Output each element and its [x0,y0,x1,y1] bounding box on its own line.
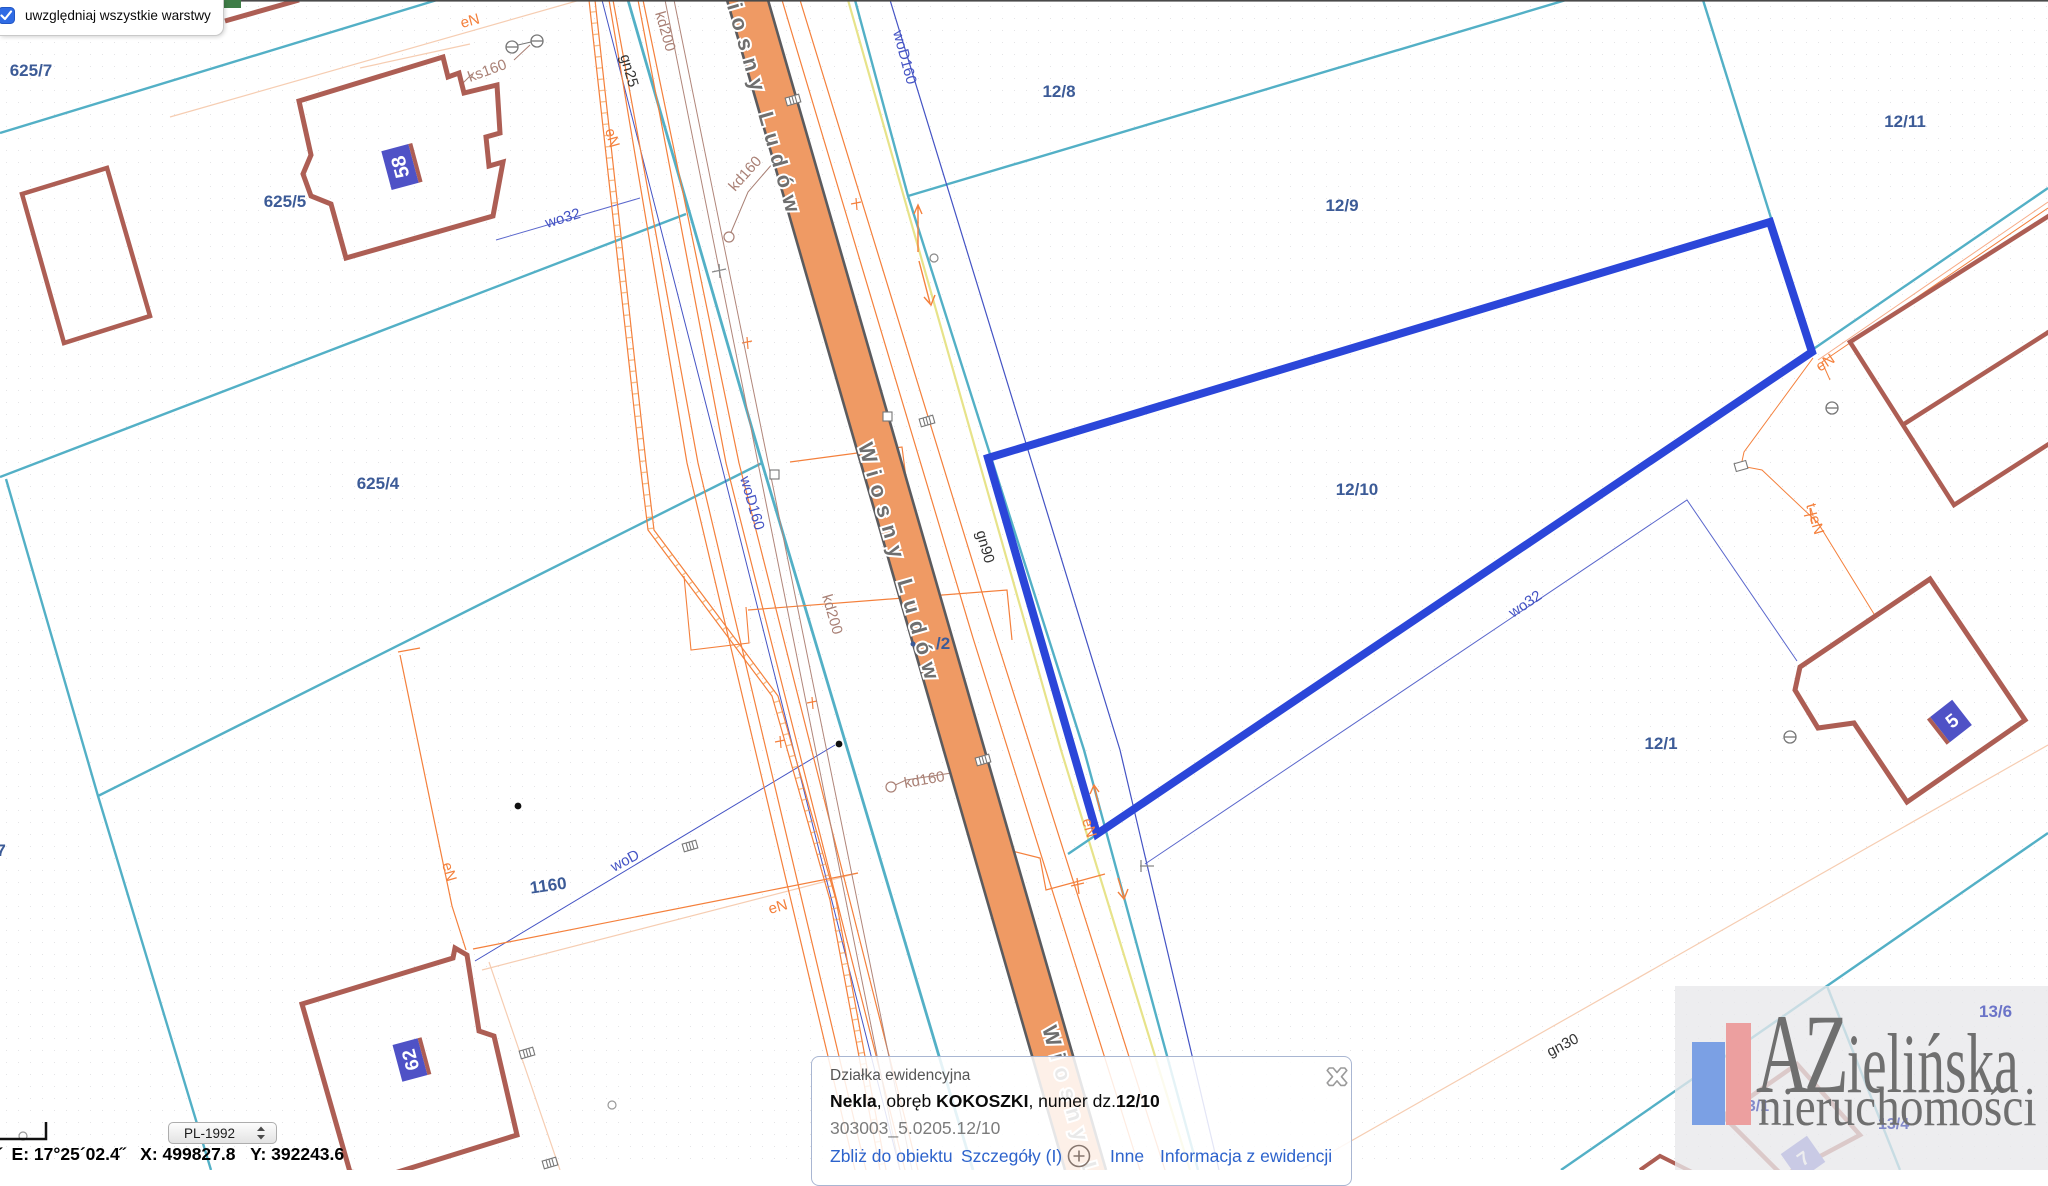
svg-text:12/10: 12/10 [1336,480,1379,499]
svg-text:12/9: 12/9 [1325,196,1358,215]
svg-text:12/8: 12/8 [1042,82,1075,101]
svg-text:?7: ?7 [0,841,6,860]
svg-text:12/1: 12/1 [1644,734,1677,753]
svg-text:625/4: 625/4 [357,474,400,493]
svg-text:625/5: 625/5 [264,192,307,211]
svg-text:12/11: 12/11 [1884,112,1926,131]
svg-text:625/7: 625/7 [10,61,53,80]
svg-text:/2: /2 [936,634,950,653]
